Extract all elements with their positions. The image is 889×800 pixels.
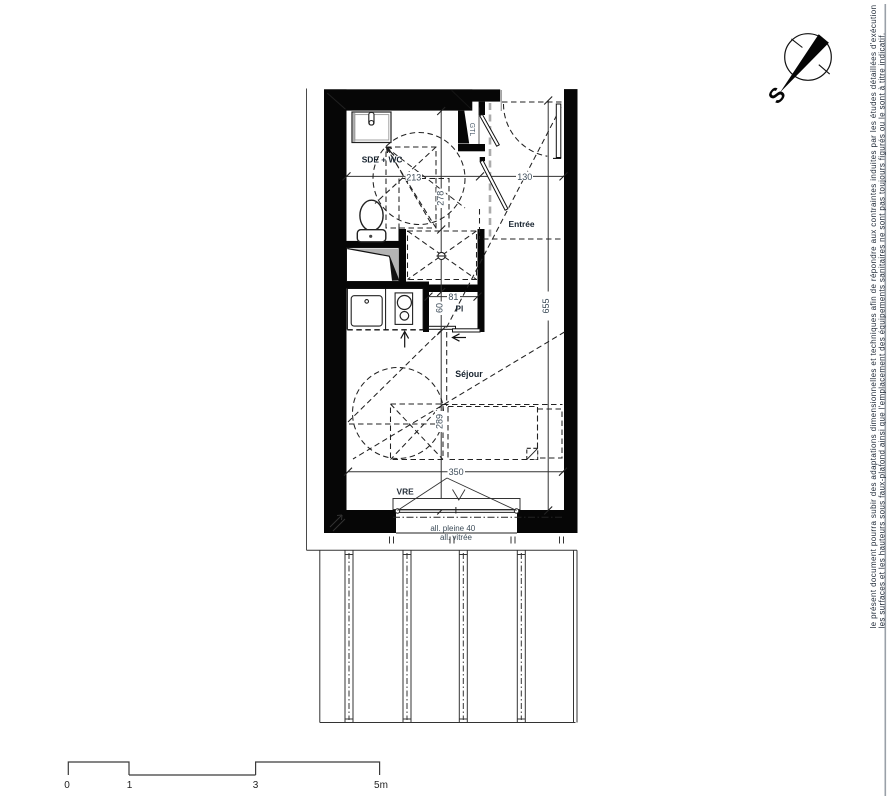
svg-text:278: 278 <box>436 191 446 206</box>
svg-text:VRE: VRE <box>397 487 415 497</box>
svg-text:all. pleine 40: all. pleine 40 <box>430 524 475 533</box>
svg-text:5m: 5m <box>374 780 388 791</box>
svg-text:1: 1 <box>127 780 133 791</box>
svg-text:350: 350 <box>449 467 464 477</box>
svg-text:289: 289 <box>435 414 445 429</box>
svg-text:130: 130 <box>517 172 532 182</box>
svg-text:Pl: Pl <box>456 305 464 314</box>
svg-text:213: 213 <box>406 172 421 182</box>
svg-text:81: 81 <box>448 292 458 302</box>
svg-text:3: 3 <box>253 780 259 791</box>
svg-text:GTL: GTL <box>468 123 475 137</box>
svg-text:all. vitrée: all. vitrée <box>440 533 473 542</box>
svg-text:Séjour: Séjour <box>455 369 483 379</box>
svg-text:S: S <box>764 83 791 109</box>
svg-text:les surfaces et les hauteurs s: les surfaces et les hauteurs sous faux-p… <box>878 33 887 629</box>
svg-text:Entrée: Entrée <box>509 219 535 229</box>
svg-text:SDE + WC: SDE + WC <box>362 155 403 165</box>
svg-text:0: 0 <box>64 780 70 791</box>
svg-text:655: 655 <box>541 298 551 313</box>
svg-text:60: 60 <box>434 303 444 313</box>
